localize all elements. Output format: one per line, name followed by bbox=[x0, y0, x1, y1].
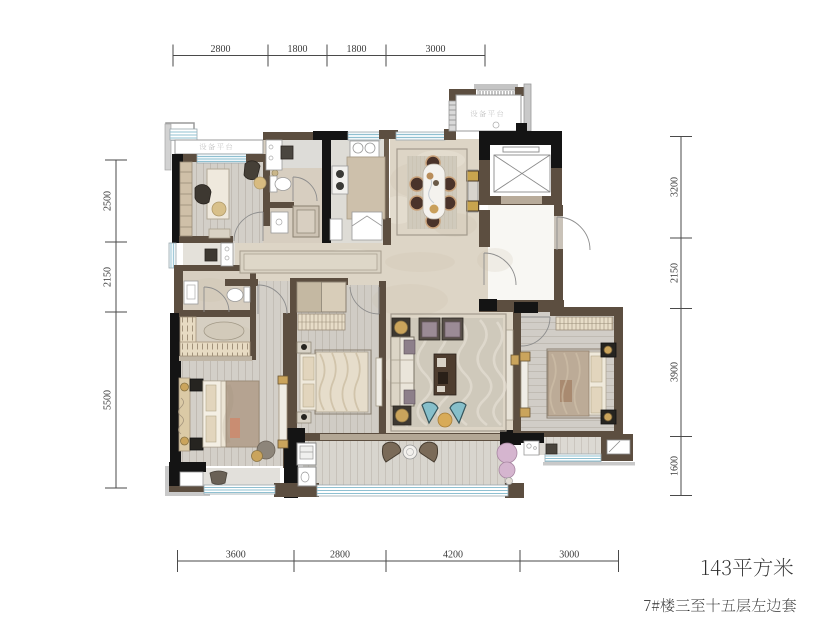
svg-text:2800: 2800 bbox=[330, 550, 350, 561]
svg-text:5500: 5500 bbox=[103, 390, 114, 410]
svg-text:3200: 3200 bbox=[670, 177, 681, 197]
svg-text:4200: 4200 bbox=[443, 550, 463, 561]
svg-text:2500: 2500 bbox=[103, 191, 114, 211]
svg-text:1600: 1600 bbox=[670, 456, 681, 476]
svg-text:3000: 3000 bbox=[559, 550, 579, 561]
svg-text:1800: 1800 bbox=[288, 44, 308, 55]
svg-text:3000: 3000 bbox=[426, 44, 446, 55]
svg-text:3900: 3900 bbox=[670, 362, 681, 382]
svg-text:2800: 2800 bbox=[211, 44, 231, 55]
svg-text:3600: 3600 bbox=[226, 550, 246, 561]
svg-text:2150: 2150 bbox=[103, 267, 114, 287]
svg-text:2150: 2150 bbox=[670, 263, 681, 283]
svg-text:1800: 1800 bbox=[347, 44, 367, 55]
